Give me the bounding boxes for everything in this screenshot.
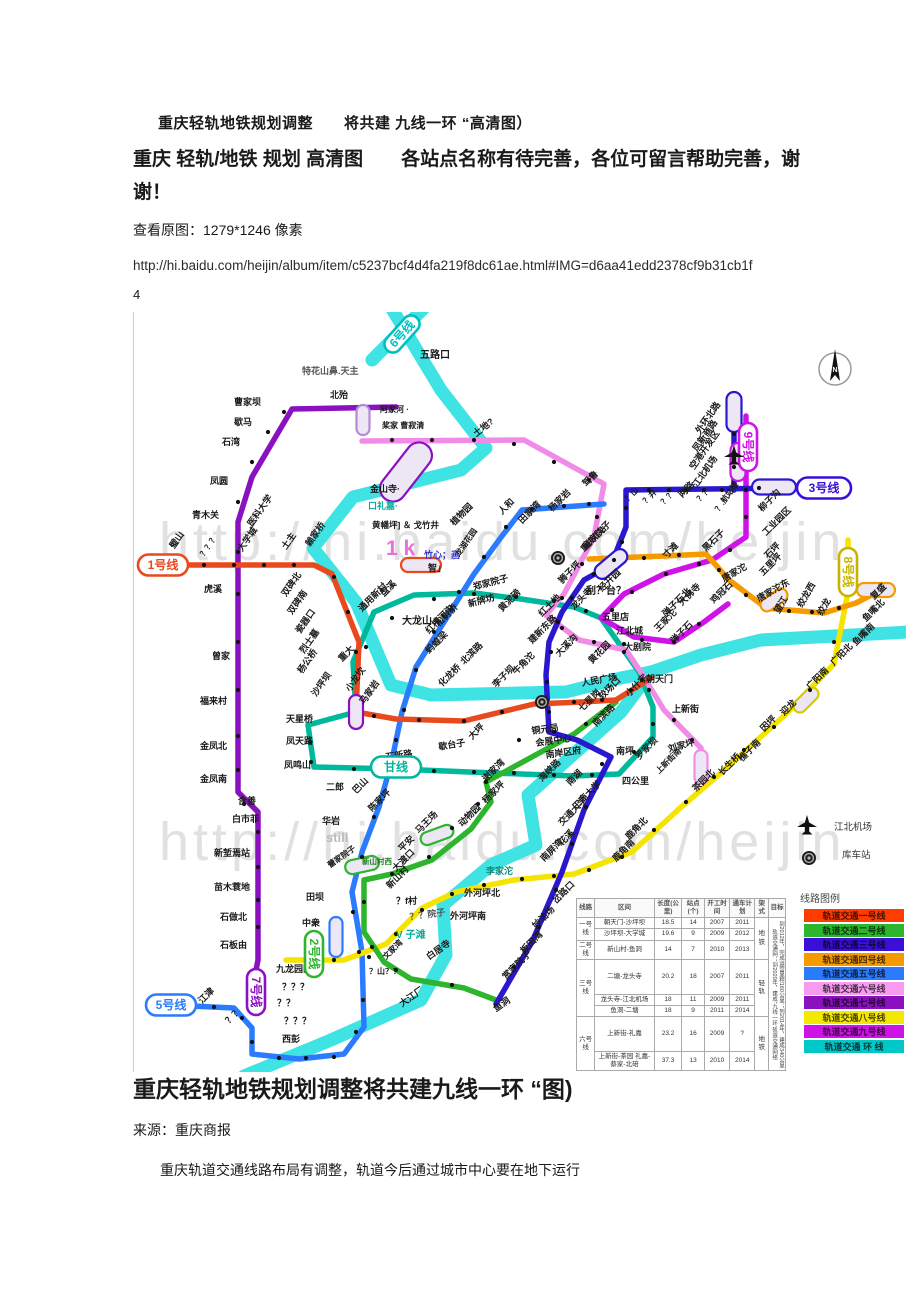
table-cell: 2010 [704,1052,729,1071]
station-dot [517,738,521,742]
station-dot [362,900,366,904]
station-dot [592,572,596,576]
station-label: 苗木蔉地 [214,881,250,892]
table-row: 沙坪坝-大学城19.6920092012 [577,929,786,940]
table-cell: 23.2 [654,1017,682,1052]
compass-icon: N [819,349,851,385]
table-cell: 2009 [704,994,729,1005]
table-header: 线路 [577,899,595,918]
table-cell: 沙坪坝-大学城 [595,929,655,940]
table-cell: 2011 [730,959,755,994]
station-dot [520,877,524,881]
station-dot [304,1056,308,1060]
station-dot [590,773,594,777]
station-dot [256,898,260,902]
station-dot [837,606,841,610]
station-dot [504,525,508,529]
line-badge: 2号线 [305,931,323,977]
table-cell: 7 [682,940,705,959]
table-row: 二号线新山村-鱼洞14720102013 [577,940,786,959]
station-label: 马家岩 [357,678,382,706]
station-label: 金凤北 [199,740,227,751]
station-dot [744,515,748,519]
legend-item: 轨道交通一号线 [804,909,904,922]
station-label: 北殆 [330,389,348,400]
footer-note: 重庆轨道交通线路布局有调整，轨道今后通过城市中心要在地下运行 [160,1160,580,1180]
station-label: 新山村西 [362,856,392,866]
station-dot [620,540,624,544]
station-dot [584,722,588,726]
table-cell: 14 [682,918,705,929]
station-dot [236,768,240,772]
station-label: 樵子南 [736,737,763,764]
station-label: 歇马 [233,416,252,427]
station-dot [744,593,748,597]
station-label: 凤天路 [286,735,314,746]
station-label: 天星桥 [286,713,314,724]
source-label: 来源：重庆商报 [133,1120,231,1140]
table-row: 一号线朝天门-沙坪坝18.51420072011地铁到2012年，完成运营里程1… [577,918,786,929]
station-dot [351,910,355,914]
station-label: 外河坪南 [449,910,486,921]
line-badge: 1号线 [138,555,188,576]
station-label: V 子滩 [396,928,425,941]
table-cell: 地铁 [755,918,769,960]
station-label: 上新街 [672,703,699,714]
station-dot [256,865,260,869]
bottom-title: 重庆轻轨地铁规划调整将共建九线一环 “图) [133,1070,573,1104]
legend-item: 轨道交通七号线 [804,996,904,1009]
station-label: 凤鸣山 [284,759,311,770]
station-label: 石做北 [219,911,247,922]
station-dot [266,430,270,434]
table-cell: 二号线 [577,940,595,959]
station-label: 智」 [428,562,446,573]
station-dot [584,609,588,613]
table-cell: 18 [654,1005,682,1016]
map-note-label: 库车站 [842,849,871,861]
station-label: 含善 [237,795,256,806]
station-label: 广阳南 [804,665,831,692]
table-cell: 9 [682,1005,705,1016]
station-label: 赏家院子 [500,948,533,981]
table-header: 区间 [595,899,655,918]
table-cell: 2014 [730,1052,755,1071]
table-cell: 11 [682,994,705,1005]
station-dot [482,883,486,887]
table-header: 目标 [769,899,786,918]
station-label: 白市菲 [232,813,259,824]
station-label: 广阳北 [828,641,855,668]
station-dot [624,506,628,510]
line-badge: 5号线 [146,995,196,1016]
legend-item: 轨道交通四号线 [804,953,904,966]
station-dot [256,830,260,834]
station-label: 绞龙西 [794,580,817,609]
station-label: 巴山 [350,775,371,796]
line-badge: 8号线 [839,548,857,596]
table-cell: 37.3 [654,1052,682,1071]
station-dot [364,645,368,649]
station-dot [612,558,616,562]
station-dot [810,610,814,614]
station-dot [236,734,240,738]
station-dot [547,710,551,714]
station-dot [595,515,599,519]
station-dot [202,563,206,567]
station-dot [592,640,596,644]
station-label: 特花山鼻.天主 [302,365,359,376]
table-cell: 2009 [704,1017,729,1052]
station-dot [292,563,296,567]
interchange-capsule [330,917,343,957]
station-label: 石板由 [219,939,247,950]
table-cell: 三号线 [577,959,595,1016]
table-row: 龙头寺-江北机场181120092011 [577,994,786,1005]
line-badge: 9号线 [739,423,757,471]
station-label: 李家沱 [485,865,513,876]
station-label: 福来村 [199,695,227,706]
station-label: 虎溪 [204,583,223,594]
station-dot [647,688,651,692]
source-url[interactable]: http://hi.baidu.com/heijin/album/item/c5… [133,258,753,273]
table-header: 开工时间 [704,899,729,918]
station-label: ？？ [277,998,295,1008]
station-dot [432,597,436,601]
station-dot [600,762,604,766]
station-label: 化龙桥 [436,661,464,689]
table-cell: 新山村-鱼洞 [595,940,655,959]
station-dot [457,590,461,594]
svg-text:甘线: 甘线 [384,759,408,774]
station-label: 江津 [196,985,217,1006]
station-dot [390,438,394,442]
railway-station-icon [802,851,816,865]
svg-text:8号线: 8号线 [841,557,856,588]
station-label: 妙油场 [530,904,557,931]
table-cell: ? [730,1017,755,1052]
station-label: ？.航站楼 [712,479,740,513]
station-label: 北滨路 [458,639,486,667]
table-cell: 2014 [730,1005,755,1016]
station-label: 南坪 [616,745,634,756]
page-number: 4 [133,287,140,302]
station-label: 朝天门 [646,673,673,684]
railway-station-icon [535,695,549,709]
station-dot [832,640,836,644]
station-label: 牛角沱 [510,650,537,677]
station-label: 桨家 曹寂清 [381,420,424,430]
station-dot [572,700,576,704]
station-dot [587,502,591,506]
legend-item: 轨道交通五号线 [804,967,904,980]
station-dot [512,771,516,775]
legend-item: 轨道交通 环 线 [804,1040,904,1053]
station-dot [732,465,736,469]
svg-text:9号线: 9号线 [741,432,756,463]
station-label: 新堑焉站 [214,847,250,858]
table-cell: 2007 [704,959,729,994]
station-label: still [326,830,348,845]
station-dot [472,438,476,442]
station-dot [427,855,431,859]
station-dot [787,609,791,613]
line-badge: 甘线 [371,757,421,778]
station-dot [697,622,701,626]
station-dot [697,562,701,566]
view-original-label: 查看原图：1279*1246 像素 [133,220,303,240]
station-dot [236,640,240,644]
station-dot [462,719,466,723]
map-note-label: 江北机场 [834,821,872,833]
station-dot [512,442,516,446]
svg-text:5号线: 5号线 [156,997,187,1012]
railway-station-icon [551,551,565,565]
station-dot [472,770,476,774]
station-dot [684,800,688,804]
station-label: 青木关 [192,509,219,520]
table-row: 上新街-茶园 礼嘉-蔡家-北碚37.31320102014 [577,1052,786,1071]
table-header: 站点(个) [682,899,705,918]
table-cell: 2009 [704,929,729,940]
table-cell: 18.5 [654,918,682,929]
table-cell: 一号线 [577,918,595,940]
station-label: 郑家院子 [472,572,510,592]
station-label: 曾家 [212,650,231,661]
station-dot [545,680,549,684]
table-cell: 2011 [730,918,755,929]
station-label: 金山寺· [369,483,400,494]
station-dot [250,460,254,464]
station-dot [560,626,564,630]
station-label: 五里店 [602,611,629,622]
table-cell: 18 [682,959,705,994]
station-label: 沙坪坝 [309,670,334,698]
station-dot [672,718,676,722]
table-cell: 2011 [730,994,755,1005]
station-dot [562,504,566,508]
station-dot [250,1040,254,1044]
table-cell: 朝天门-沙坪坝 [595,918,655,929]
station-dot [212,1005,216,1009]
table-cell: 18 [654,994,682,1005]
table-cell: 2007 [704,918,729,929]
station-label: 五路口 [420,348,450,361]
station-label: 黄幡坪] ＆ 戈竹井 [372,520,440,530]
legend-title: 线路图例 [800,890,906,905]
svg-text:3号线: 3号线 [809,480,840,495]
station-dot [432,769,436,773]
station-dot [332,1055,336,1059]
station-dot [370,945,374,949]
station-label: 迎龙 [778,697,799,718]
station-dot [630,590,634,594]
station-dot [732,432,736,436]
table-header: 架式 [755,899,769,918]
station-dot [652,828,656,832]
station-dot [728,548,732,552]
station-label: 西彭 [282,1033,300,1044]
station-dot [372,815,376,819]
legend-item: 轨道交通六号线 [804,982,904,995]
table-row: 鱼洞-二塘18920112014 [577,1005,786,1016]
svg-text:2号线: 2号线 [307,939,322,970]
station-label: ？？？ [284,1016,311,1026]
table-cell: 2013 [730,940,755,959]
map-legend: 线路图例 轨道交通一号线轨道交通二号线轨道交通三号线轨道交通四号线轨道交通五号线… [794,890,906,1053]
table-cell: 2012 [730,929,755,940]
table-cell: 轻轨 [755,959,769,1016]
table-header: 长度(公里) [654,899,682,918]
station-dot [664,572,668,576]
station-dot [642,556,646,560]
station-dot [472,592,476,596]
table-row: 六号线上新街-礼嘉23.2162009?地铁 [577,1017,786,1052]
station-label: 田坝 [306,891,324,902]
station-dot [256,925,260,929]
station-dot [500,710,504,714]
station-label: 阿家河 · [380,404,409,414]
station-label: 金凤南 [199,773,227,784]
station-dot [402,708,406,712]
station-dot [346,610,350,614]
table-cell: 地铁 [755,1017,769,1071]
station-label: ？f村 [396,895,417,906]
legend-item: 轨道交通九号线 [804,1025,904,1038]
station-dot [236,688,240,692]
table-cell: 2011 [704,1005,729,1016]
station-dot [414,668,418,672]
station-dot [282,410,286,414]
table-cell: 9 [682,929,705,940]
station-dot [232,563,236,567]
table-cell: 二塘-龙头寺 [595,959,655,994]
station-label: 大溪沟 [553,632,580,659]
station-dot [651,722,655,726]
metro-map-svg: http://hi.baidu.com/heijinhttp://hi.baid… [134,312,906,1072]
station-dot [717,568,721,572]
intro-paragraph: 重庆 轻轨/地铁 规划 高清图 各站点名称有待完善，各位可留言帮助完善，谢谢！ [133,143,803,210]
table-cell: 20.2 [654,959,682,994]
station-dot [357,950,361,954]
table-cell: 13 [682,1052,705,1071]
table-cell: 2010 [704,940,729,959]
station-dot [277,1056,281,1060]
metro-map-image: http://hi.baidu.com/heijinhttp://hi.baid… [133,312,906,1072]
station-dot [587,868,591,872]
station-dot [394,738,398,742]
station-dot [390,616,394,620]
table-header: 通车计划 [730,899,755,918]
station-label: 口礼嘉· [368,500,398,511]
legend-item: 轨道交通八号线 [804,1011,904,1024]
station-dot [450,983,454,987]
table-cell: 上新街-礼嘉 [595,1017,655,1052]
table-cell: 14 [654,940,682,959]
station-dot [240,1016,244,1020]
station-dot [570,842,574,846]
station-dot [354,1030,358,1034]
station-dot [361,998,365,1002]
station-dot [417,718,421,722]
station-label: 板田湾 [518,929,545,956]
station-dot [332,575,336,579]
station-dot [236,500,240,504]
station-dot [367,955,371,959]
page-title: 重庆轻轨地铁规划调整 将共建 九线一环 “高清图） [158,112,532,133]
interchange-capsule [357,405,370,435]
interchange-capsule [791,685,821,715]
station-label: 因坪 [758,713,779,734]
station-dot [450,892,454,896]
station-label: 大坪 [466,721,487,742]
table-row: 三号线二塘-龙头寺20.21820072011轻轨 [577,959,786,994]
legend-item: 轨道交通三号线 [804,938,904,951]
station-label: 曹家坝 [234,396,261,407]
station-label: 大剧院 [624,641,651,652]
line-badge: 3号线 [797,478,851,499]
table-cell: 上新街-茶园 礼嘉-蔡家-北碚 [595,1052,655,1071]
station-dot [430,438,434,442]
station-dot [552,460,556,464]
svg-text:1号线: 1号线 [148,557,179,572]
station-label: 大龙山 [402,614,432,627]
station-dot [720,488,724,492]
table-cell: 六号线 [577,1017,595,1071]
station-dot [482,555,486,559]
station-label: 罗家坝 [633,735,660,762]
table-cell: 到2012年，完成运营里程160公里；到2014年，建成340公里轨道交通网；到… [769,918,786,1071]
station-dot [236,592,240,596]
station-label: 石湾 [221,436,240,447]
station-dot [757,486,761,490]
station-dot [352,767,356,771]
station-label: 1 k [386,537,416,560]
table-cell: 龙头寺-江北机场 [595,994,655,1005]
station-label: 外河坪北 [463,887,500,898]
table-cell: 16 [682,1017,705,1052]
table-cell: 鱼洞-二塘 [595,1005,655,1016]
station-label: 中衆 [302,917,320,928]
station-dot [262,563,266,567]
station-dot [450,826,454,830]
station-dot [372,714,376,718]
legend-item: 轨道交通二号线 [804,924,904,937]
station-dot [549,650,553,654]
station-dot [332,958,336,962]
station-label: 二郎 [326,781,344,792]
interchange-capsule [727,392,742,432]
station-dot [552,874,556,878]
svg-text:7号线: 7号线 [249,977,264,1008]
line-badge: 7号线 [247,969,265,1015]
station-label: 鸡冠石 [707,579,735,607]
svg-text:N: N [832,367,837,374]
station-label: 歇台子 [436,736,466,752]
table-cell: 19.6 [654,929,682,940]
station-dot [744,488,748,492]
station-label: 南湖 [564,767,585,788]
station-label: 华岩 [322,815,340,826]
station-label: ？？？ [282,982,309,992]
rail-plan-table: 线路区间长度(公里)站点(个)开工时间通车计划架式目标一号线朝天门-沙坪坝18.… [576,898,786,1071]
station-label: ？山？？ [369,966,401,976]
station-dot [677,553,681,557]
station-label: 凤圆 [210,476,228,486]
station-label: 江北城 [616,625,643,636]
document-page: { "page": { "title1": "重庆轻轨地铁规划调整 将共建 九线… [0,0,920,1303]
station-label: 四公里 [622,776,649,786]
